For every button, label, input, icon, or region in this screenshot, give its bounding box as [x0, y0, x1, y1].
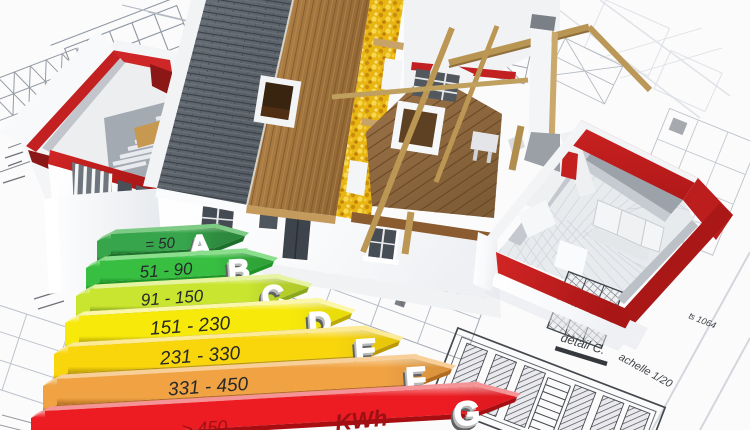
- svg-text:= 50: = 50: [145, 234, 176, 253]
- svg-text:51 - 90: 51 - 90: [139, 259, 194, 282]
- svg-text:G: G: [453, 394, 482, 430]
- svg-text:KWh: KWh: [334, 404, 389, 430]
- svg-text:> 450: > 450: [181, 416, 228, 430]
